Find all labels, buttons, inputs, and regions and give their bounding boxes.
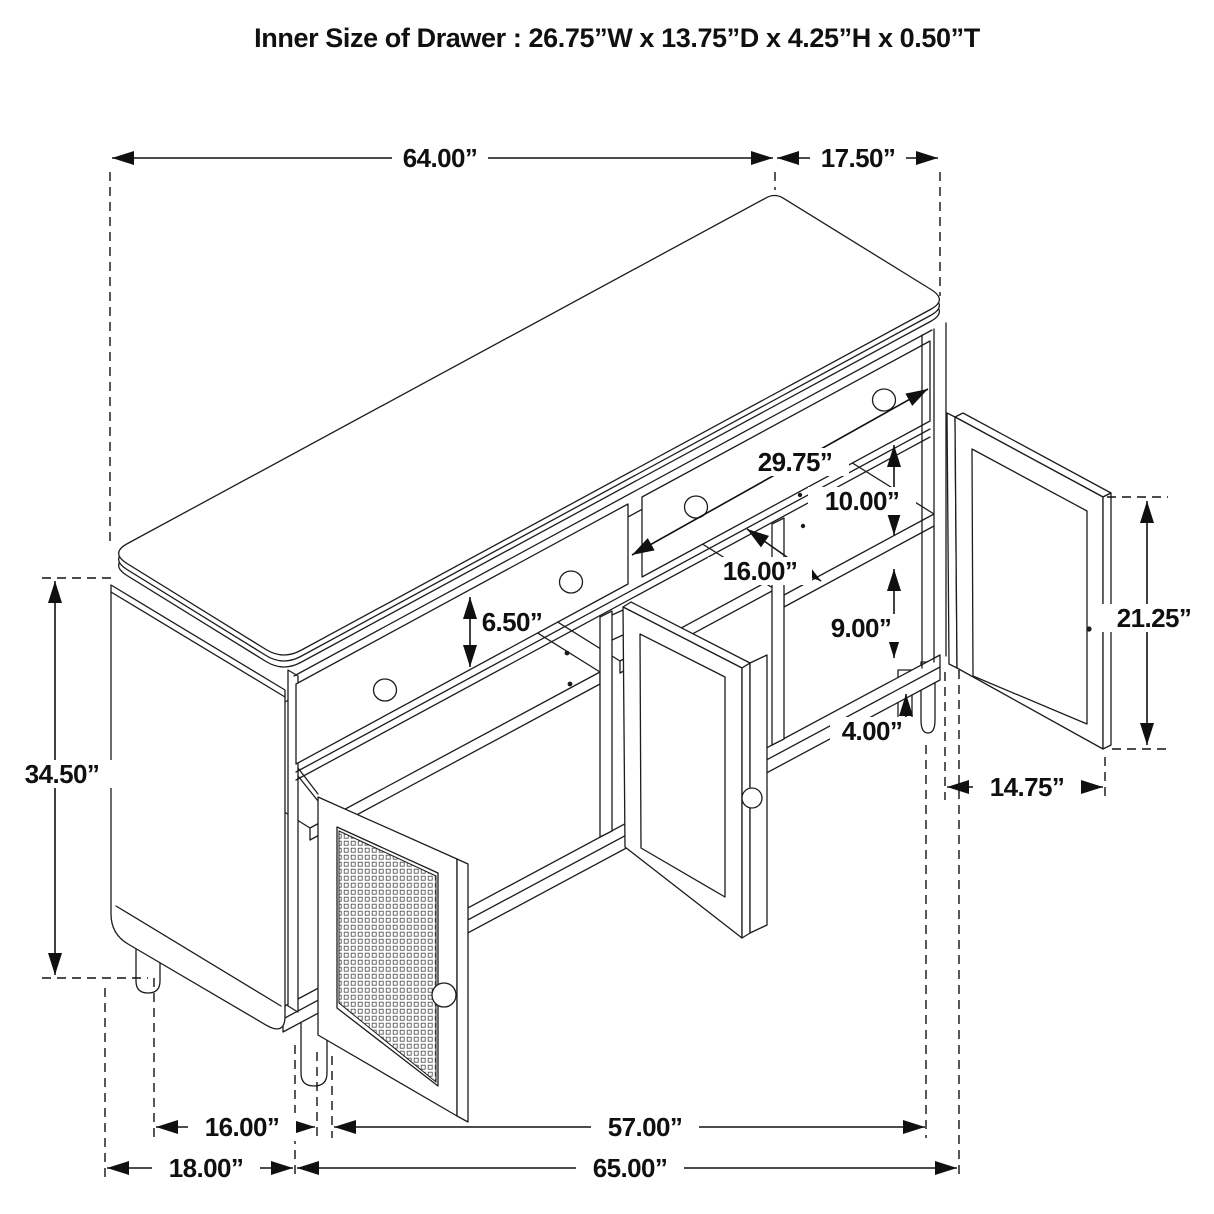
- label-door-width: 14.75”: [990, 772, 1064, 802]
- shelf-pin-hole: [568, 682, 573, 687]
- label-leg-height: 4.00”: [842, 716, 903, 746]
- door-knob-pin: [1086, 626, 1091, 631]
- shelf-pin-hole: [565, 651, 570, 656]
- door-knob: [432, 983, 456, 1007]
- label-door-height: 21.25”: [1117, 603, 1191, 633]
- label-shelf-depth: 16.00”: [723, 556, 797, 586]
- divider-left: [600, 611, 612, 837]
- divider-right: [772, 518, 784, 745]
- label-top-length: 64.00”: [403, 143, 477, 173]
- label-floor-length: 65.00”: [593, 1153, 667, 1183]
- label-drawer-width: 29.75”: [758, 447, 832, 477]
- cabinet-dimension-diagram: 64.00” 17.50” 34.50” 6.50” 29.75” 10.00”…: [0, 0, 1214, 1214]
- drawer-knob: [873, 389, 896, 411]
- label-top-depth: 17.50”: [821, 143, 895, 173]
- door-rattan-edge: [457, 859, 468, 1122]
- label-left-leg-span: 16.00”: [205, 1112, 279, 1142]
- label-upper-opening: 10.00”: [825, 486, 899, 516]
- door-knob: [742, 788, 762, 808]
- page-title: Inner Size of Drawer : 26.75”W x 13.75”D…: [254, 23, 981, 53]
- label-side-floor-width: 18.00”: [169, 1153, 243, 1183]
- drawer-knob: [374, 679, 397, 701]
- label-overall-height: 34.50”: [25, 759, 99, 789]
- label-lower-opening: 9.00”: [831, 613, 892, 643]
- drawing-canvas: 64.00” 17.50” 34.50” 6.50” 29.75” 10.00”…: [0, 0, 1214, 1214]
- label-front-leg-span: 57.00”: [608, 1112, 682, 1142]
- shelf-pin-hole: [801, 524, 805, 528]
- drawer-knob: [560, 571, 583, 593]
- shelf-pin-hole: [798, 493, 802, 497]
- label-drawer-height: 6.50”: [482, 607, 543, 637]
